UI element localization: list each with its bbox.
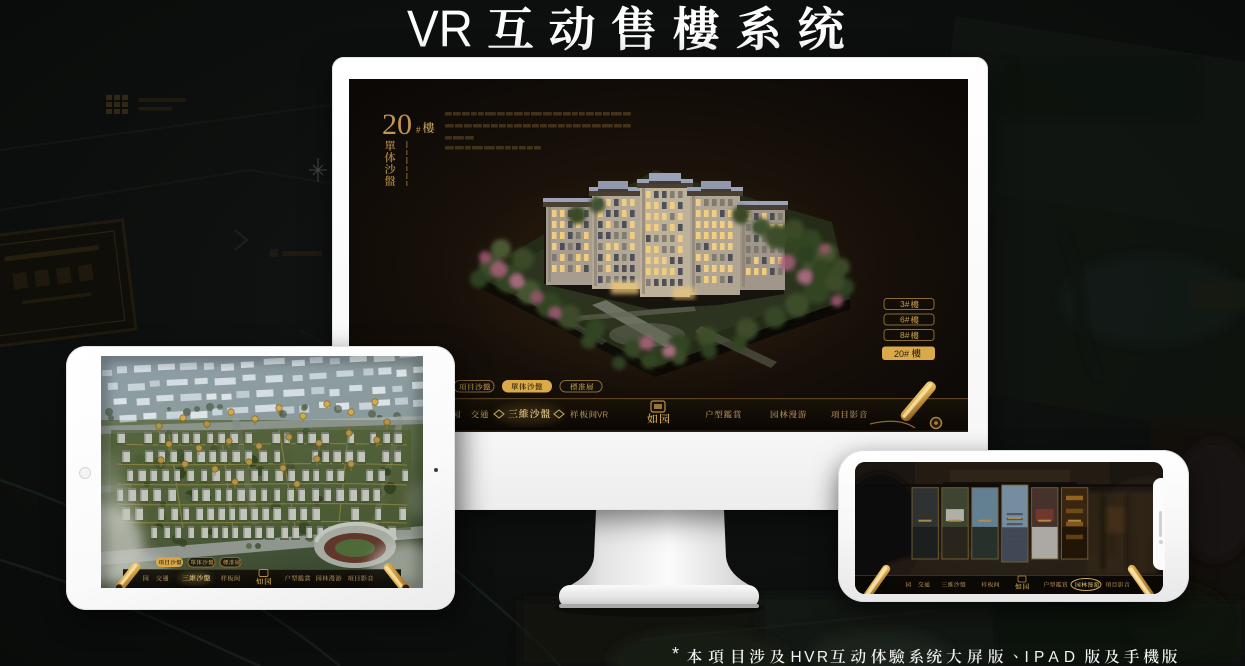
svg-text:HVR: HVR <box>791 649 831 666</box>
svg-text:*: * <box>672 644 679 664</box>
svg-text:VR: VR <box>597 411 608 420</box>
svg-text:20#: 20# <box>894 349 909 359</box>
svg-text:VR: VR <box>407 1 473 59</box>
svg-text:20: 20 <box>382 108 412 141</box>
svg-text:8#: 8# <box>900 330 910 340</box>
svg-text:IPAD: IPAD <box>1025 649 1081 666</box>
svg-text:3#: 3# <box>900 299 910 309</box>
svg-text:6#: 6# <box>900 315 910 325</box>
svg-text:#: # <box>416 125 421 135</box>
